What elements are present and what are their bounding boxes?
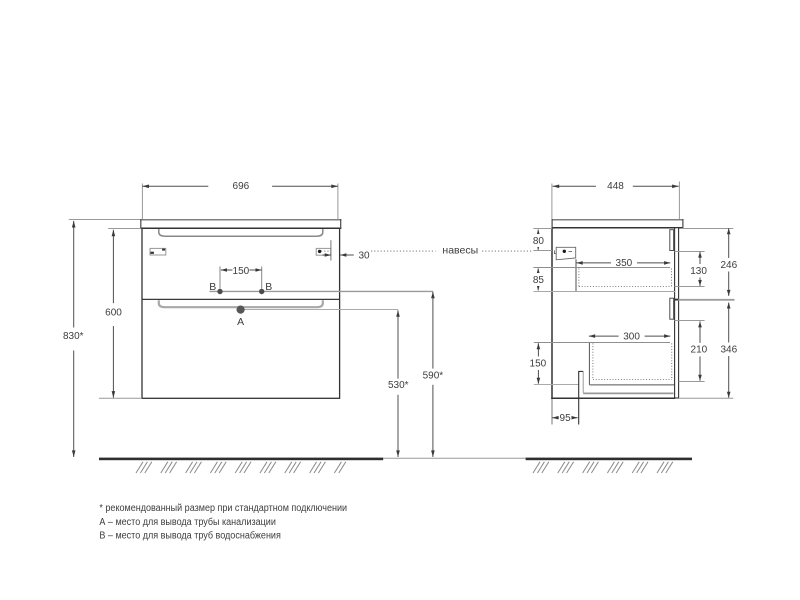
svg-text:навесы: навесы xyxy=(442,245,478,257)
svg-text:B: B xyxy=(209,281,216,293)
svg-text:150: 150 xyxy=(530,358,547,369)
svg-text:150: 150 xyxy=(233,266,250,277)
svg-text:30: 30 xyxy=(358,251,370,262)
svg-text:530*: 530* xyxy=(388,380,409,391)
svg-text:B: B xyxy=(265,281,272,293)
svg-text:590*: 590* xyxy=(423,371,444,382)
svg-text:600: 600 xyxy=(105,307,122,318)
svg-text:85: 85 xyxy=(533,275,545,286)
svg-text:246: 246 xyxy=(720,260,737,271)
svg-text:210: 210 xyxy=(691,345,708,356)
svg-text:* рекомендованный размер при с: * рекомендованный размер при стандартном… xyxy=(99,502,347,514)
svg-text:346: 346 xyxy=(720,344,737,355)
svg-text:300: 300 xyxy=(623,332,640,343)
svg-text:350: 350 xyxy=(616,258,633,269)
svg-text:А – место для вывода трубы кан: А – место для вывода трубы канализации xyxy=(99,516,275,528)
svg-text:В – место для вывода труб водо: В – место для вывода труб водоснабжения xyxy=(99,530,280,542)
svg-text:80: 80 xyxy=(533,236,545,247)
svg-text:A: A xyxy=(237,316,244,328)
svg-text:830*: 830* xyxy=(63,331,84,342)
svg-text:696: 696 xyxy=(233,181,250,192)
svg-text:130: 130 xyxy=(690,266,707,277)
svg-text:448: 448 xyxy=(607,181,624,192)
svg-text:95: 95 xyxy=(560,413,572,424)
